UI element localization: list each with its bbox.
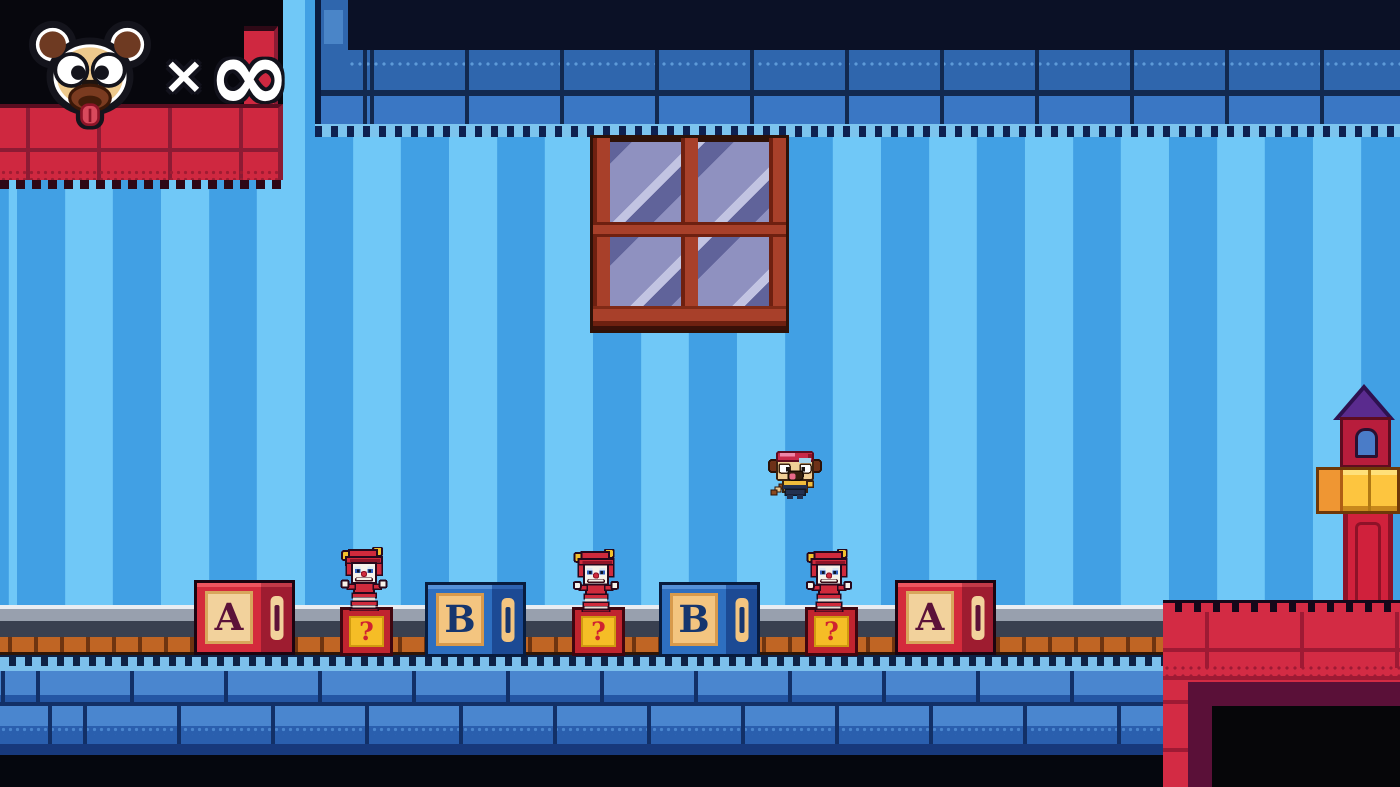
tower-band-divider [1368, 470, 1371, 511]
red-brick-grout [0, 148, 278, 152]
block-side-slot [735, 598, 748, 642]
archway-opening [1212, 706, 1400, 787]
background-window [593, 138, 786, 330]
block-side-slot [270, 596, 283, 640]
red-brick-archway [1163, 600, 1400, 787]
floor-brick-joints [0, 671, 1163, 706]
question-mark: ? [591, 619, 606, 644]
floor-deep-shade [0, 744, 1163, 755]
ceiling-brick-joints [348, 50, 1400, 124]
window-sill [593, 306, 786, 330]
enemy-clown [570, 549, 626, 612]
question-panel: ? [349, 616, 384, 647]
block-side-face [726, 585, 757, 654]
archway-pillar-grout [1163, 700, 1190, 704]
block-side-slot [501, 598, 514, 642]
floor-teeth-base [0, 655, 1163, 671]
tower-shaft-panel [1355, 522, 1381, 608]
ceiling-corner-brick [324, 10, 343, 44]
archway-brick-body [1163, 612, 1400, 787]
block-side-glyph [975, 605, 980, 631]
block-side-slot [971, 596, 984, 640]
enemy-clown [338, 547, 394, 611]
tower-window [1355, 428, 1378, 458]
tower-band-orange-block [1319, 470, 1343, 511]
question-mark: ? [824, 619, 839, 644]
block-highlight [962, 583, 993, 587]
red-ledge-teeth-edge [0, 180, 283, 189]
archway-teeth-base [1163, 600, 1400, 612]
block-highlight [428, 585, 492, 589]
window-sill-shadow [593, 321, 786, 330]
floor-brick-joints [0, 706, 1163, 744]
player-character [763, 450, 827, 518]
block-letter: B [678, 601, 709, 638]
question-panel: ? [814, 616, 849, 647]
block-letter: A [215, 599, 244, 636]
block-side-glyph [739, 607, 744, 633]
block-front-face: B [428, 585, 492, 654]
question-block: ? [575, 610, 622, 653]
block-panel: A [906, 591, 954, 644]
block-front-face: A [898, 583, 962, 652]
question-mark: ? [359, 619, 374, 644]
letter-block-b: B [428, 585, 523, 654]
block-side-face [962, 583, 993, 652]
archway-pillar-grout [1163, 748, 1190, 752]
block-side-face [261, 583, 292, 652]
brick-floor [0, 655, 1163, 787]
block-panel: B [436, 593, 484, 646]
block-front-face: B [662, 585, 726, 654]
tower-balcony-band [1316, 467, 1400, 514]
archway-brick-joints [1163, 612, 1400, 668]
question-block: ? [808, 610, 855, 653]
block-highlight [197, 583, 261, 587]
ceiling-structure [315, 0, 1400, 137]
block-side-glyph [274, 605, 279, 631]
block-highlight [726, 585, 757, 589]
block-highlight [898, 583, 962, 587]
block-front-face: A [197, 583, 261, 652]
ceiling-corner-column [321, 0, 348, 90]
game-viewport[interactable]: A ? B ? B [0, 0, 1400, 787]
block-highlight [261, 583, 292, 587]
letter-block-b: B [662, 585, 757, 654]
question-panel: ? [581, 616, 616, 647]
red-brick-shading [0, 169, 278, 180]
archway-grout [1163, 676, 1400, 680]
lives-count-value: ∞ [208, 31, 291, 121]
ceiling-teeth-edge [315, 126, 1400, 137]
block-letter: B [444, 601, 475, 638]
block-side-glyph [505, 607, 510, 633]
block-side-face [492, 585, 523, 654]
floor-bottom-dark [0, 755, 1163, 787]
block-panel: B [670, 593, 718, 646]
lives-counter: × ∞ [162, 26, 291, 126]
letter-block-a: A [898, 583, 993, 652]
block-highlight [492, 585, 523, 589]
tower-shaft [1343, 514, 1393, 608]
pug-face-icon [26, 18, 154, 130]
multiplier-symbol: × [162, 46, 206, 106]
enemy-clown [803, 549, 859, 612]
letter-block-a: A [197, 583, 292, 652]
archway-door-frame [1188, 682, 1400, 787]
window-mullion [593, 222, 786, 237]
block-panel: A [205, 591, 253, 644]
question-block: ? [343, 610, 390, 653]
tower-roof [1339, 390, 1389, 419]
block-letter: A [916, 599, 945, 636]
block-highlight [662, 585, 726, 589]
ceiling-dark-interior [348, 0, 1400, 50]
lives-hud: × ∞ [26, 18, 316, 128]
archway-teeth-edge [1163, 603, 1400, 612]
